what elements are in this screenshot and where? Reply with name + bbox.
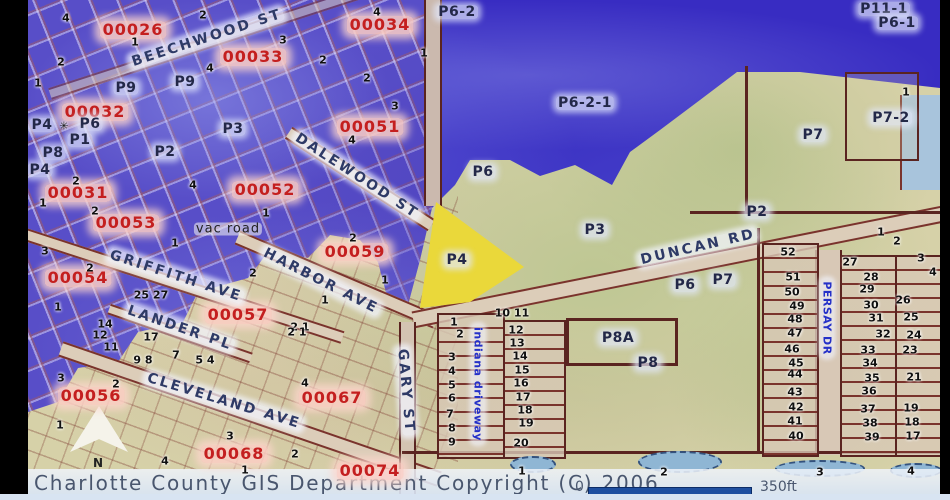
map-canvas[interactable]: N Charlotte County GIS Department Copyri… [28, 0, 940, 500]
road-persay-dr [815, 250, 842, 455]
lot-column-persay-east [840, 255, 940, 457]
letterbox-right [940, 0, 950, 500]
road-vertical-north [424, 0, 442, 206]
parcel-p7-2-outline [845, 72, 919, 161]
parcel-p8a-outline [566, 318, 678, 366]
copyright-text: Charlotte County GIS Department Copyrigh… [34, 471, 660, 495]
north-label: N [93, 456, 103, 470]
scalebar-distance-label: 350ft [760, 479, 797, 495]
parcel-boundary-line [745, 66, 748, 212]
gis-map-viewer: N Charlotte County GIS Department Copyri… [0, 0, 950, 500]
scalebar-zero-label: 0 [575, 479, 584, 495]
lot-column-persay-west [762, 243, 819, 457]
bottom-strip [0, 494, 950, 500]
parcel-boundary-line [757, 228, 760, 452]
lot-column-gary-west [437, 313, 505, 459]
letterbox-left [0, 0, 28, 500]
lot-column-gary-east [503, 320, 566, 459]
parcel-boundary-line [690, 211, 940, 214]
